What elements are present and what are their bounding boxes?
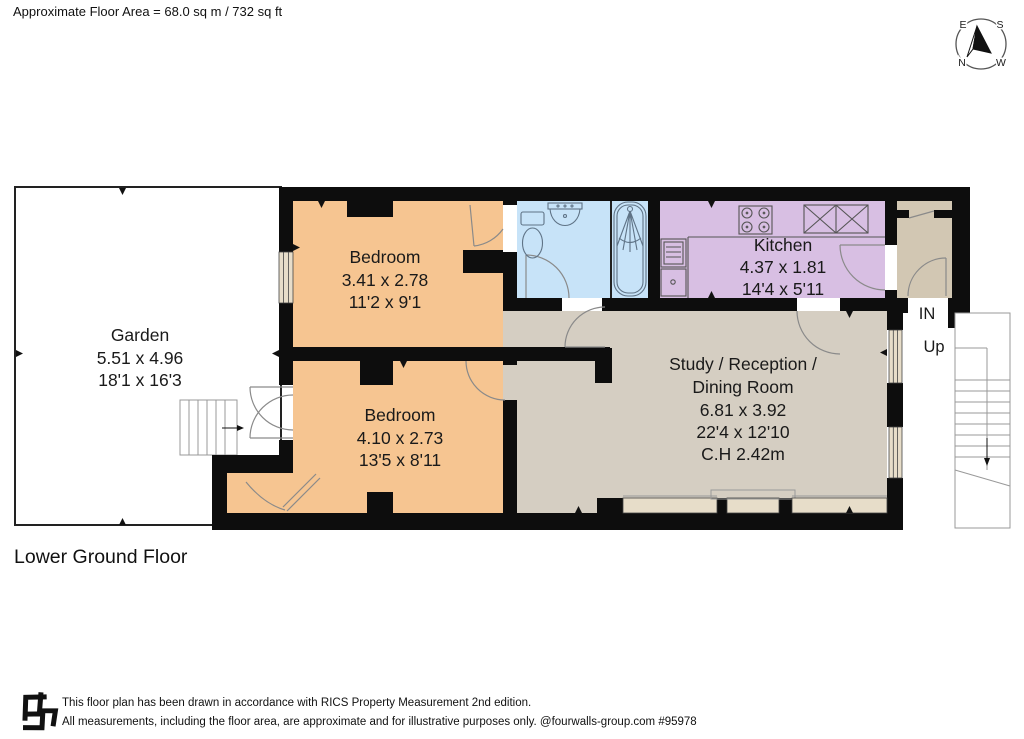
svg-text:13'5 x 8'11: 13'5 x 8'11 xyxy=(359,450,441,470)
wall-segment xyxy=(503,361,517,365)
compass-east-label: E xyxy=(959,19,966,31)
wall-segment xyxy=(597,498,623,513)
compass-south-label: S xyxy=(996,19,1003,31)
wall-segment xyxy=(503,201,517,205)
wall-segment xyxy=(887,311,903,330)
wall-segment xyxy=(279,440,293,457)
study-window-bottom-3 xyxy=(792,496,887,513)
wall-segment xyxy=(367,492,393,513)
wall-segment xyxy=(897,298,908,313)
wall-segment xyxy=(897,210,909,218)
study-window-bottom-1 xyxy=(623,496,717,513)
wall-segment xyxy=(885,290,897,298)
garden-steps xyxy=(180,400,244,455)
wall-segment xyxy=(595,348,612,383)
wall-segment xyxy=(503,252,517,298)
wall-segment xyxy=(279,303,293,385)
svg-text:Garden: Garden xyxy=(111,325,169,345)
wall-segment xyxy=(463,250,503,273)
wall-segment xyxy=(279,347,610,361)
svg-text:5.51 x 4.96: 5.51 x 4.96 xyxy=(97,348,184,368)
svg-text:4.37 x 1.81: 4.37 x 1.81 xyxy=(740,257,827,277)
compass-north-label: N xyxy=(958,57,966,69)
wall-segment xyxy=(360,347,393,385)
in-label: IN xyxy=(919,305,936,323)
wall-segment xyxy=(952,187,970,298)
svg-text:Dining Room: Dining Room xyxy=(692,377,793,397)
compass-rose: E S N W xyxy=(956,19,1006,69)
wall-segment xyxy=(885,201,897,245)
compass-needle-icon xyxy=(967,26,991,57)
wall-segment xyxy=(887,478,903,530)
svg-text:6.81 x 3.92: 6.81 x 3.92 xyxy=(700,400,787,420)
wall-segment xyxy=(279,187,970,201)
wall-segment xyxy=(887,383,903,427)
svg-text:Bedroom: Bedroom xyxy=(349,247,420,267)
svg-text:3.41 x 2.78: 3.41 x 2.78 xyxy=(342,270,429,290)
bedroom1-window xyxy=(279,252,293,303)
svg-text:C.H 2.42m: C.H 2.42m xyxy=(701,444,785,464)
study-window-right-2 xyxy=(889,427,902,478)
bedroom2-label: Bedroom 4.10 x 2.73 13'5 x 8'11 xyxy=(357,405,444,470)
svg-text:22'4 x 12'10: 22'4 x 12'10 xyxy=(696,422,790,442)
wall-segment xyxy=(840,298,897,311)
wall-segment xyxy=(934,210,952,218)
up-label: Up xyxy=(923,338,944,356)
wall-segment xyxy=(648,201,660,298)
wall-segment xyxy=(279,201,293,252)
fourwalls-logo-icon xyxy=(14,690,59,735)
entrance-stairs xyxy=(955,313,1010,528)
floor-plan-svg: Garden 5.51 x 4.96 18'1 x 16'3 Bedroom 3… xyxy=(0,0,1024,739)
wall-segment xyxy=(212,513,903,530)
svg-text:Bedroom: Bedroom xyxy=(364,405,435,425)
wall-segment xyxy=(347,201,393,217)
svg-text:18'1 x 16'3: 18'1 x 16'3 xyxy=(98,370,182,390)
svg-text:11'2 x 9'1: 11'2 x 9'1 xyxy=(349,292,422,312)
compass-west-label: W xyxy=(996,57,1006,69)
wall-segment xyxy=(779,498,792,513)
svg-text:Kitchen: Kitchen xyxy=(754,235,812,255)
wall-segment xyxy=(503,298,562,311)
wall-segment xyxy=(602,298,797,311)
svg-text:14'4 x 5'11: 14'4 x 5'11 xyxy=(742,279,824,299)
study-floor xyxy=(503,311,887,513)
svg-text:Study / Reception /: Study / Reception / xyxy=(669,354,817,374)
svg-text:4.10 x 2.73: 4.10 x 2.73 xyxy=(357,428,444,448)
bedroom1-label: Bedroom 3.41 x 2.78 11'2 x 9'1 xyxy=(342,247,429,312)
wall-segment xyxy=(717,498,727,513)
study-window-right-1 xyxy=(889,330,902,383)
wall-segment xyxy=(503,400,517,513)
